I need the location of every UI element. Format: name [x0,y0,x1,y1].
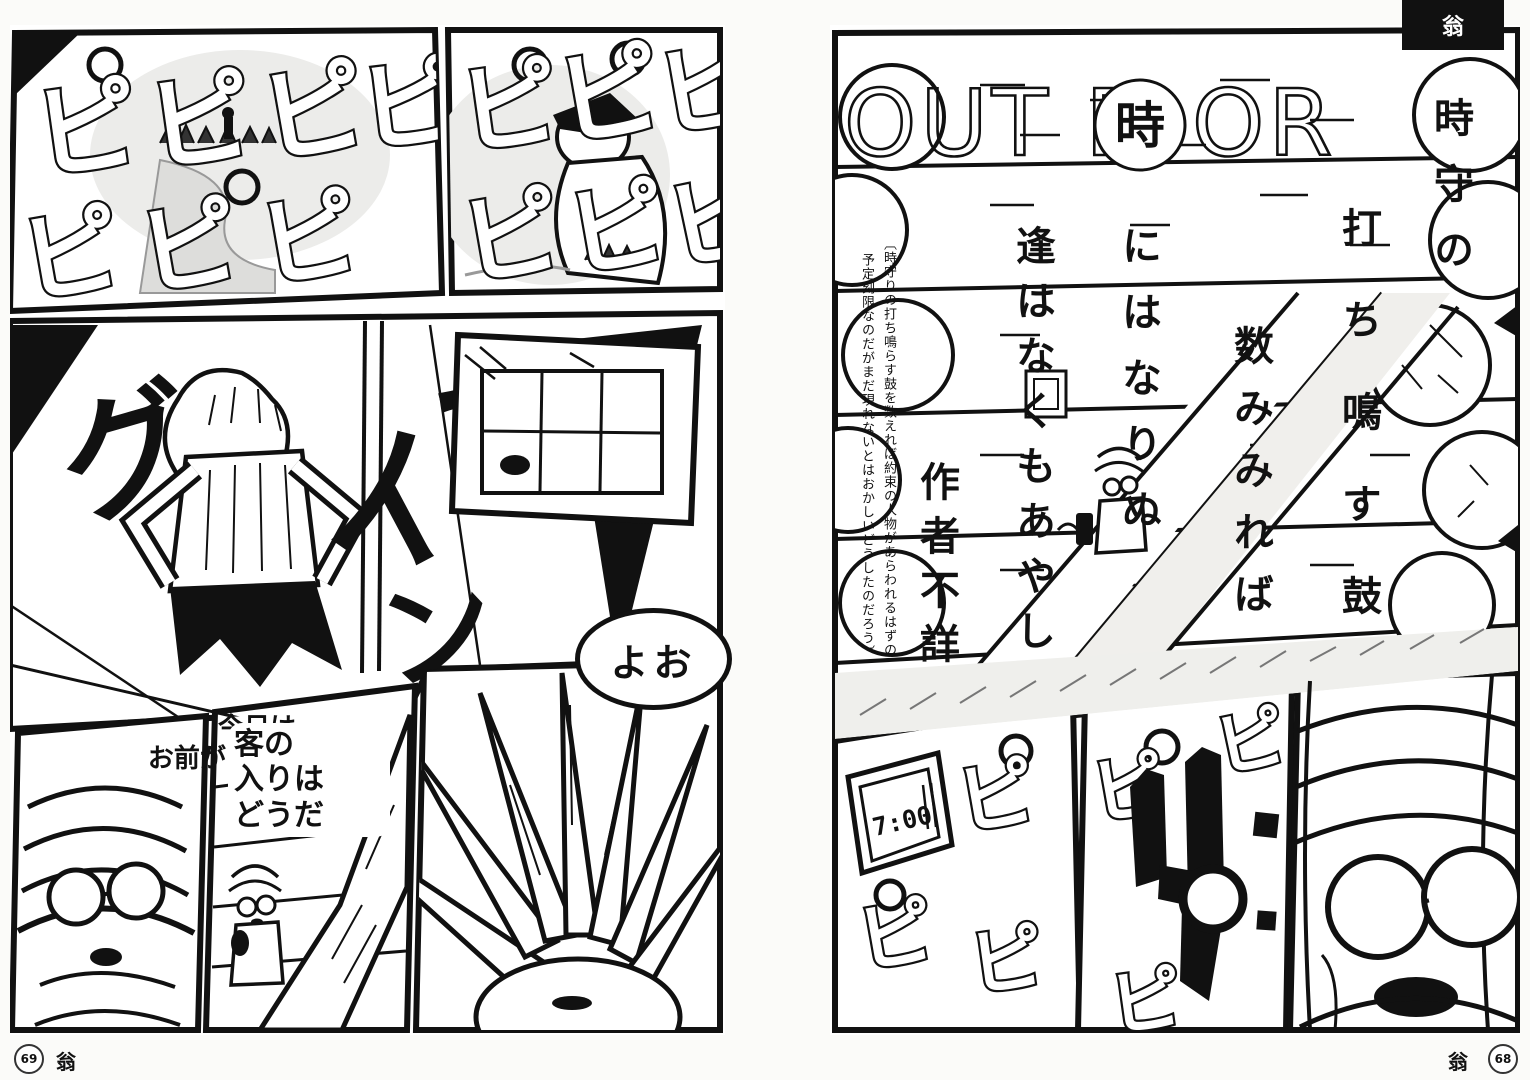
sfx-beep: ピ [130,181,249,314]
speech-customers-line2: 入りは [234,762,384,797]
poem-col1: 時守の [1430,97,1470,295]
left-page-art: ピ ピ ピ ピ ピ ピ ピ ピ ピ ピ ピ [10,25,725,1035]
sfx-beep: ピ [950,747,1042,849]
right-page: OUT D 時 OR 7:00 ピ ピ ピ ピ ピ [830,25,1520,1035]
page-number-right: 68 [1488,1044,1518,1074]
title-outdoor: OUT D 時 OR [844,70,1336,177]
sfx-beep: ピ [26,62,147,197]
page-number-right-text: 68 [1495,1052,1512,1066]
sfx-beep: ピ [964,914,1049,1009]
annotation-col2: 予定刻限なのだがまだ現れないとはおかしいどうしたのだろう〕 [860,253,873,659]
corner-label-box: 翁 [1402,0,1504,50]
sfx-beep: ピ [452,171,571,304]
manga-spread: ピ ピ ピ ピ ピ ピ ピ ピ ピ ピ ピ [0,0,1530,1080]
speech-bubble-yo: よお [575,608,732,710]
sfx-beep: ピ [250,173,369,306]
poem-col5: 逢はなくもあやし [1012,225,1052,665]
poem-col2: 打ち鳴す鼓 [1338,207,1378,667]
series-label-left: 翁 [56,1046,76,1075]
sfx-beep: ピ [851,885,941,986]
poem-col3: 数みみれば [1230,325,1270,635]
left-page: ピ ピ ピ ピ ピ ピ ピ ピ ピ ピ ピ [10,25,725,1035]
annotation-col1: 〔時守りの打ち鳴らす鼓を数えれば約束の人物があらわれるはずの [882,237,895,657]
sfx-beep: ピ [1105,955,1188,1035]
series-label-right: 翁 [1448,1046,1468,1075]
speech-customers-line3: どうだ [234,798,384,833]
page-number-left-text: 69 [21,1052,38,1066]
speech-yo-text: よお [610,632,696,687]
corner-label: 翁 [1442,9,1464,41]
speech-customers-line1: 客の [234,727,384,762]
poem-col4: にはなりぬ [1118,225,1158,555]
page-number-left: 69 [14,1044,44,1074]
sfx-beep: ピ [12,189,131,322]
poem-author: 作者不詳 [916,461,956,677]
speech-customers: 客の 入りは どうだ [228,723,390,837]
sfx-beep: ピ [140,55,261,190]
title-or: OR [1192,70,1336,177]
title-circled-kanji: 時 [1115,97,1165,155]
